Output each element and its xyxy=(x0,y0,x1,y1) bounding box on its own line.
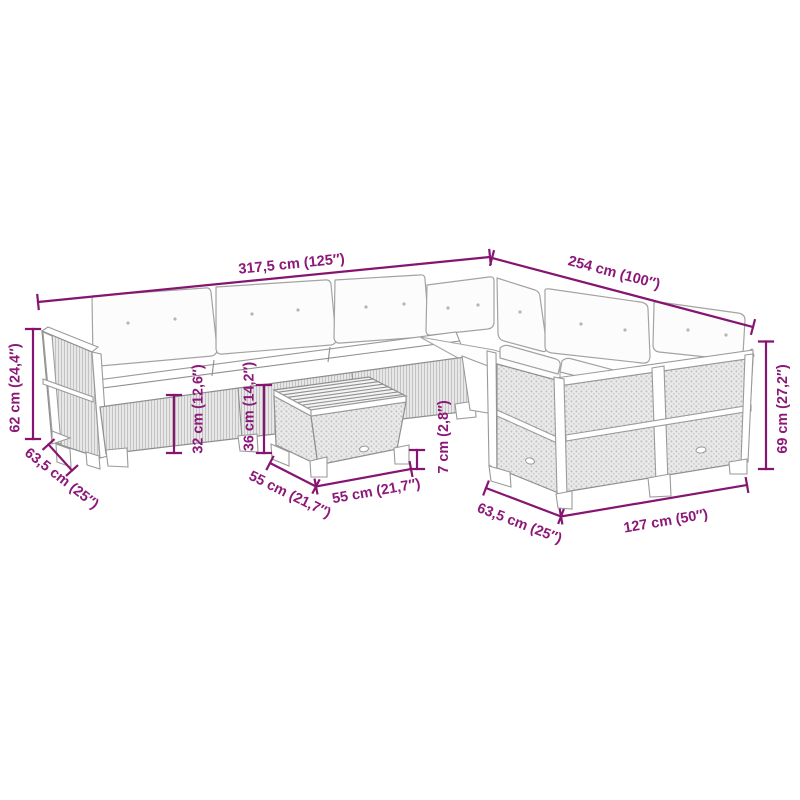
svg-text:32 cm (12,6″): 32 cm (12,6″) xyxy=(191,364,207,453)
svg-text:36 cm (14,2″): 36 cm (14,2″) xyxy=(242,362,258,451)
svg-text:62 cm (24,4″): 62 cm (24,4″) xyxy=(8,343,24,432)
svg-text:7 cm (2,8″): 7 cm (2,8″) xyxy=(436,400,452,473)
svg-text:69 cm (27,2″): 69 cm (27,2″) xyxy=(775,364,791,453)
